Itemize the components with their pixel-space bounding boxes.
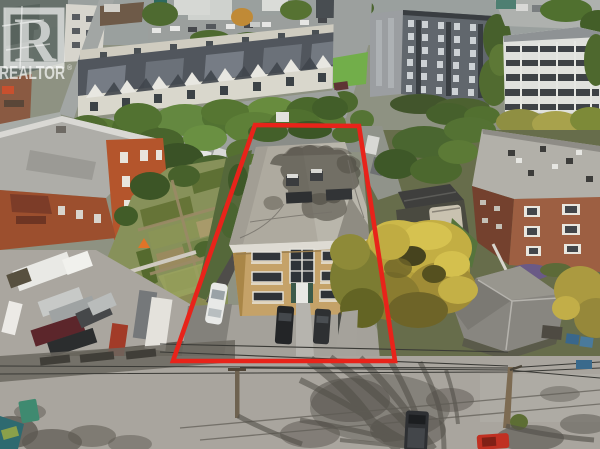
- svg-text:REALTOR: REALTOR: [0, 63, 65, 83]
- svg-text:®: ®: [67, 64, 73, 72]
